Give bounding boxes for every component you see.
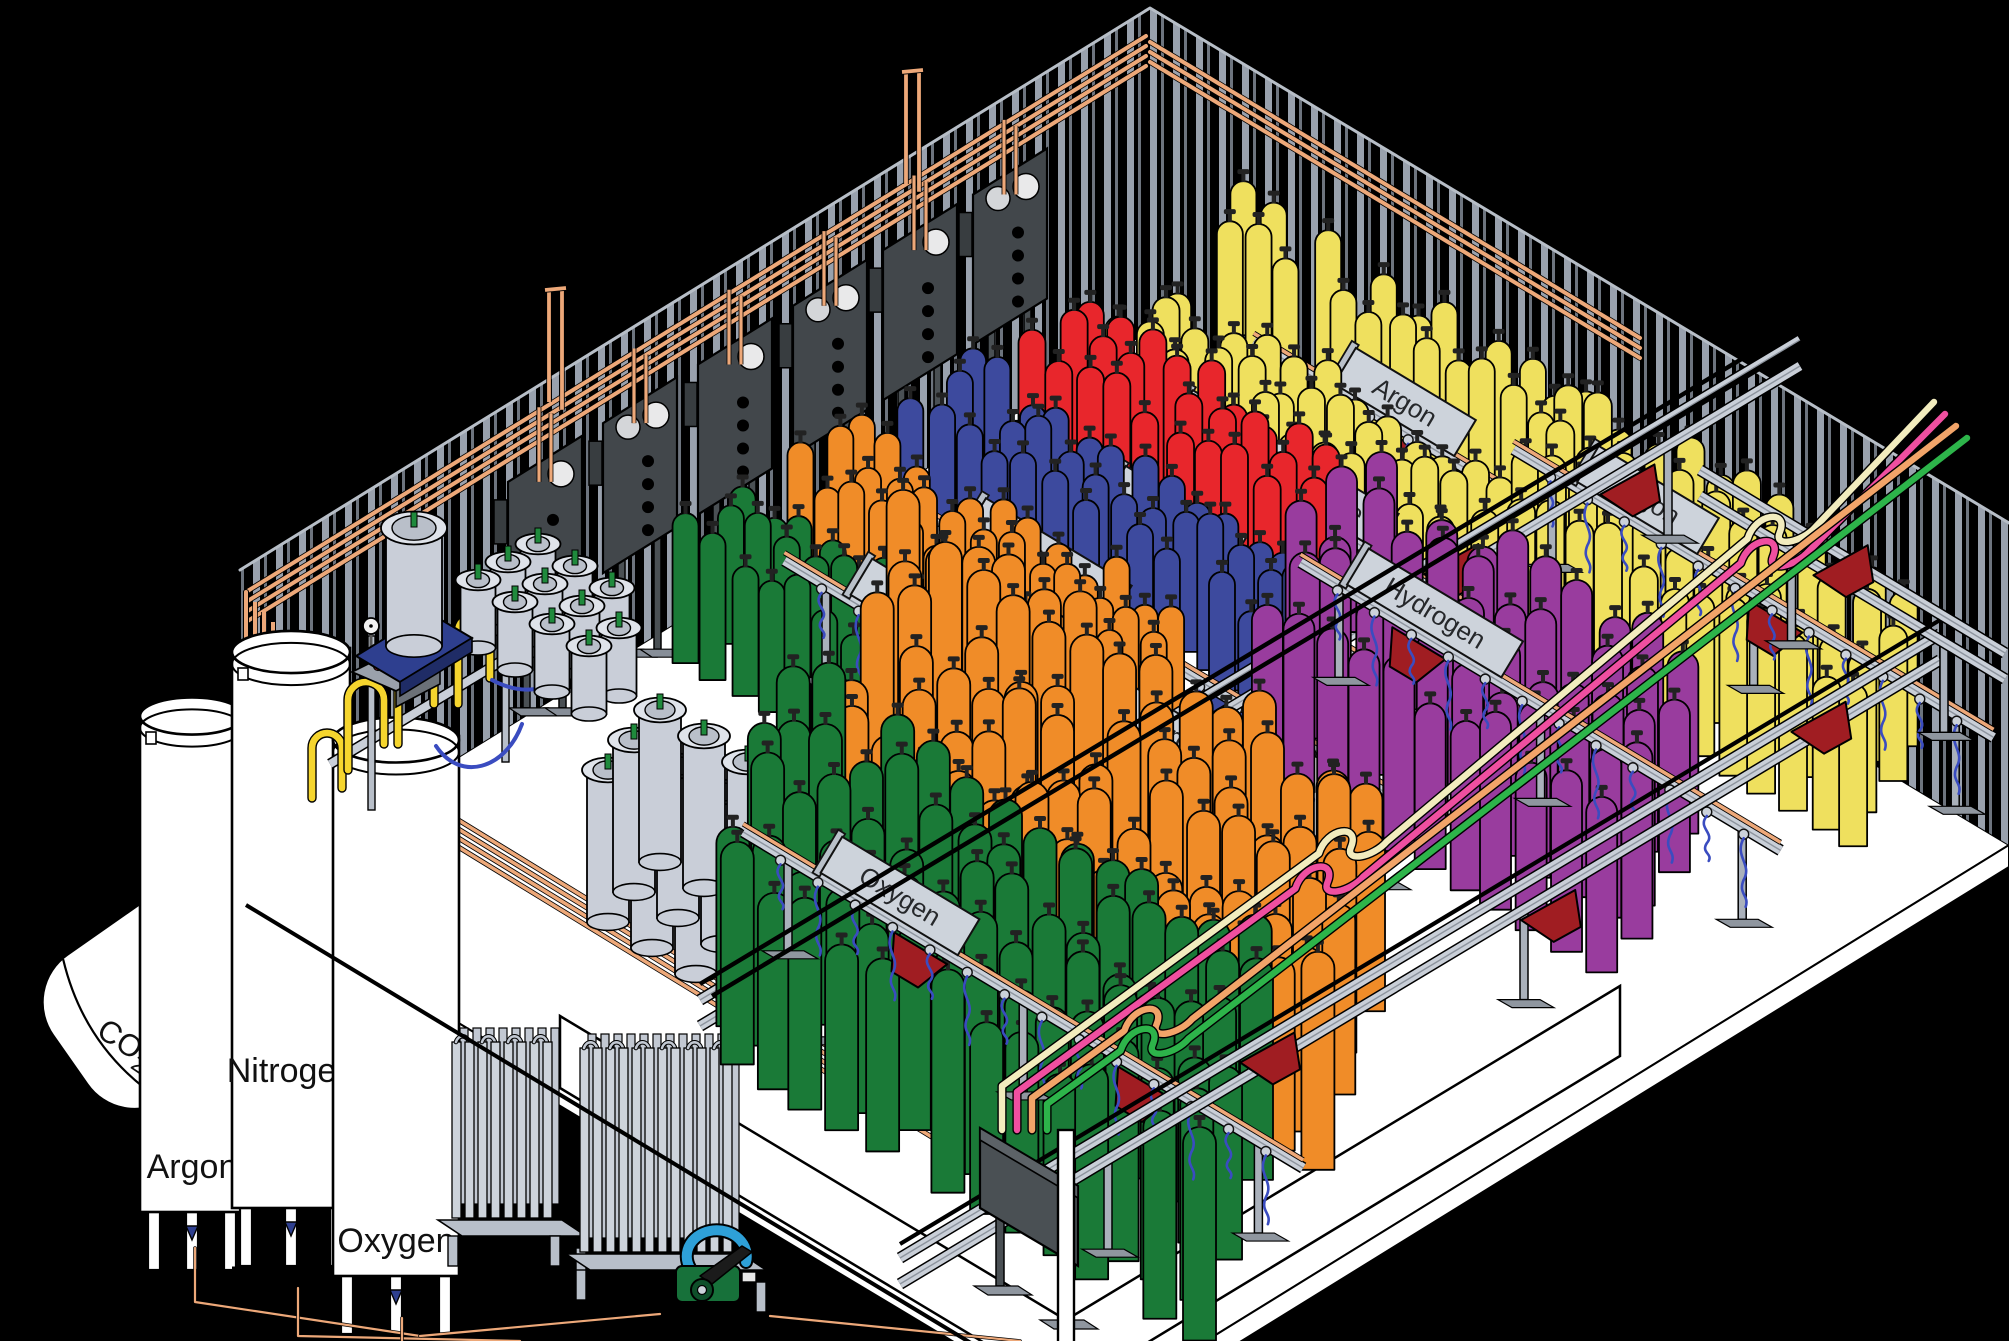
dewar [530,608,575,699]
cutaway-corner-post [1058,1130,1074,1341]
bulk-tank-oxygen: Oxygen [333,718,459,1337]
dewar [493,586,538,677]
bulk-tank-oxygen-label: Oxygen [337,1222,454,1260]
page: CO2ArgonNitrogenOxygenArgonCarbon Dioxid… [0,0,2009,1341]
dewar [634,694,686,870]
gas-plant-illustration: CO2ArgonNitrogenOxygenArgonCarbon Dioxid… [0,0,2009,1341]
dewar [381,512,447,658]
bulk-tank-argon: Argon [140,697,244,1272]
bulk-tank-argon-label: Argon [147,1148,238,1186]
dewar [567,630,612,721]
